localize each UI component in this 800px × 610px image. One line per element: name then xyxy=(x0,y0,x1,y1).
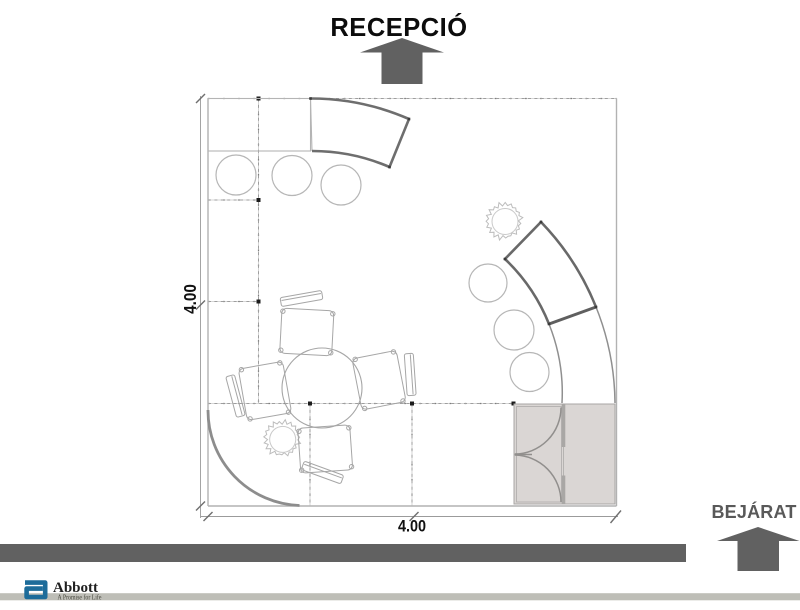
svg-text:RECEPCIÓ: RECEPCIÓ xyxy=(330,12,467,42)
svg-text:BEJÁRAT: BEJÁRAT xyxy=(711,501,796,522)
svg-text:4.00: 4.00 xyxy=(398,517,426,535)
svg-text:A Promise for Life: A Promise for Life xyxy=(58,594,102,602)
svg-text:4.00: 4.00 xyxy=(180,284,200,314)
